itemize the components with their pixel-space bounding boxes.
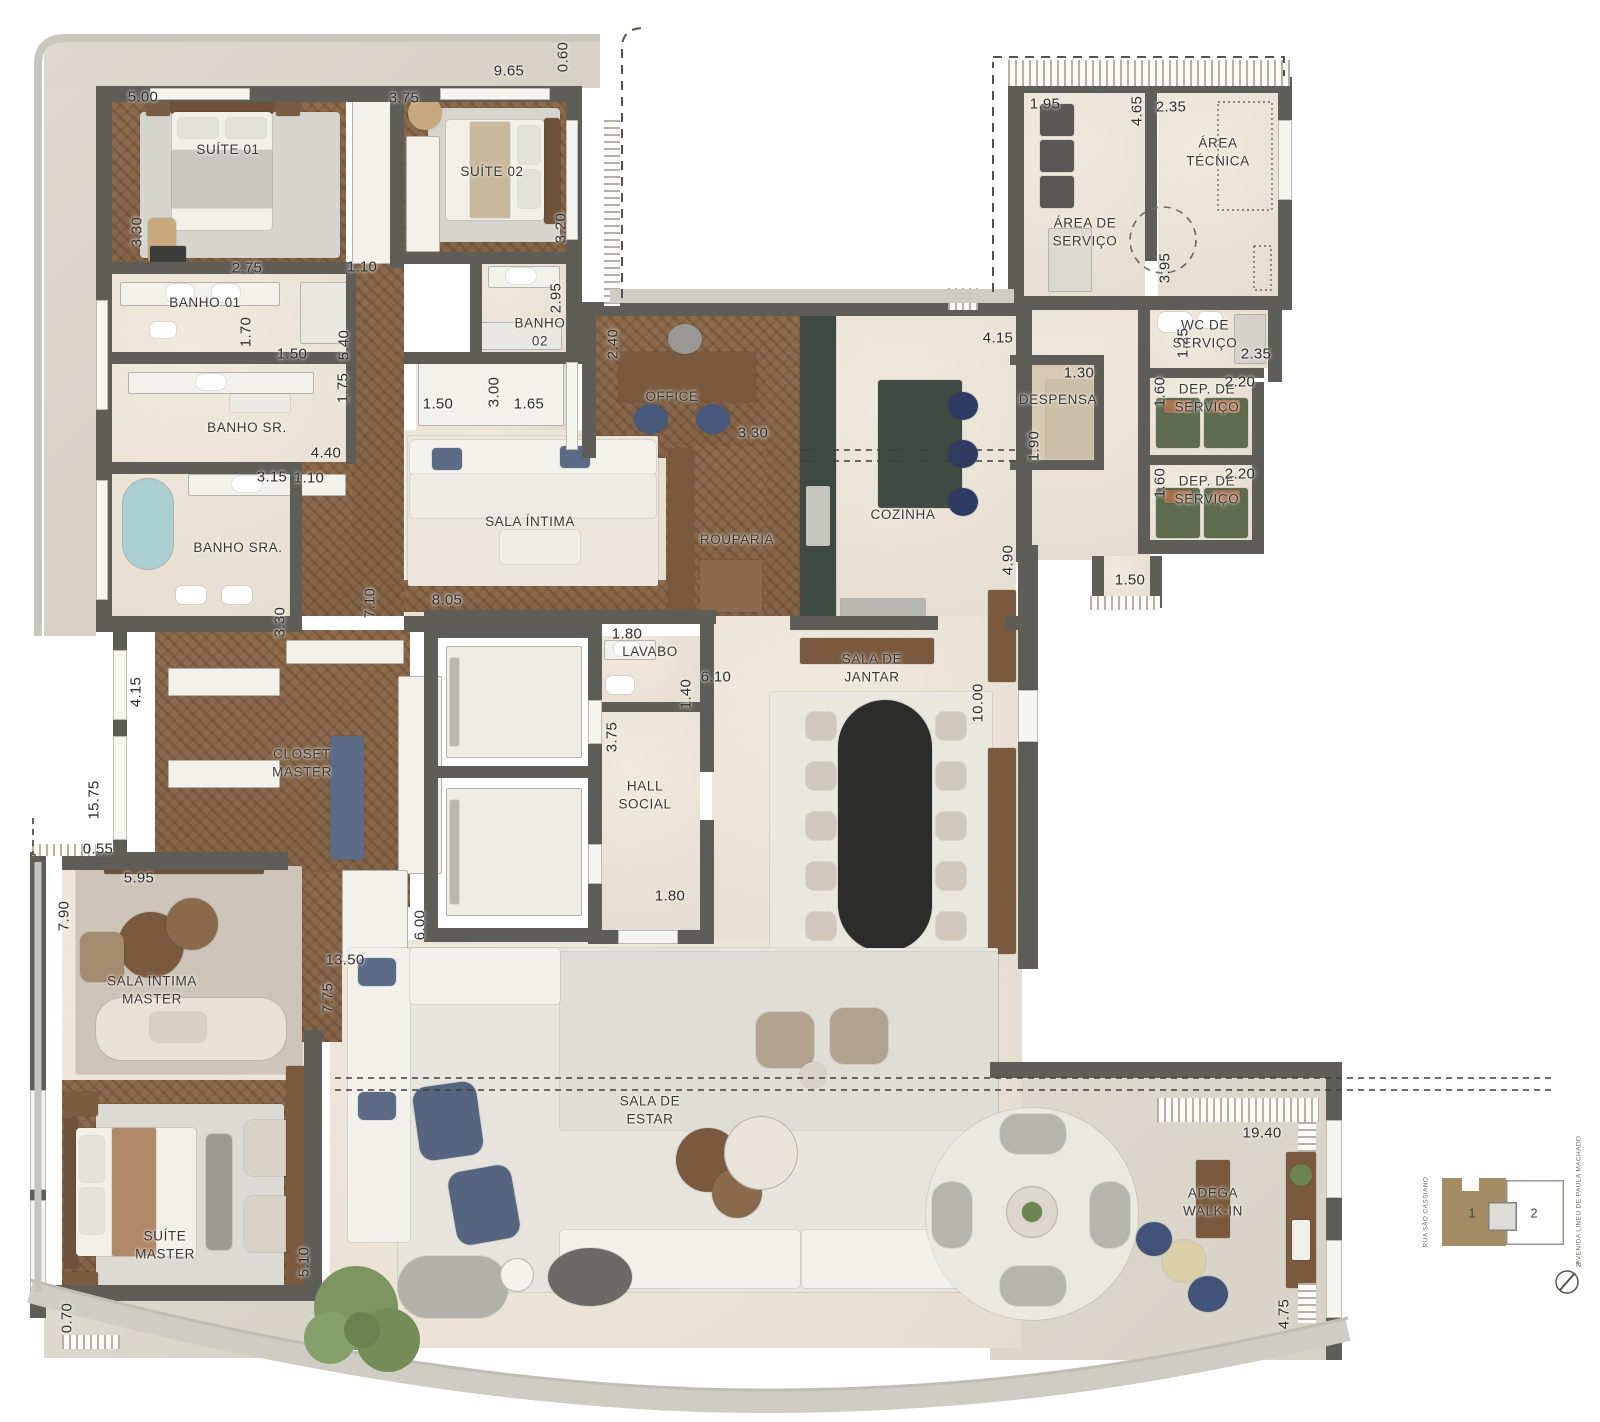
room-label-cozinha: COZINHA xyxy=(871,506,936,524)
dim-label: 1.50 xyxy=(277,346,307,363)
dim-label: 3.15 xyxy=(257,469,287,486)
dim-label: 1.10 xyxy=(347,259,377,276)
room-label-banho-sra: BANHO SRA. xyxy=(193,539,282,557)
dim-label: 1.50 xyxy=(423,396,453,413)
dim-label: 7.10 xyxy=(362,588,379,618)
room-label-area-tecnica: ÁREA TÉCNICA xyxy=(1186,134,1249,169)
north-label: N xyxy=(1576,1262,1581,1269)
dim-label: 1.70 xyxy=(238,317,255,347)
dim-label: 10.00 xyxy=(970,683,987,722)
dim-label: 6.10 xyxy=(701,669,731,686)
dim-label: 1.30 xyxy=(1064,365,1094,382)
dim-label: 1.80 xyxy=(655,888,685,905)
dim-label: 0.70 xyxy=(59,1303,76,1333)
dim-label: 13.50 xyxy=(325,952,364,969)
dim-label: 2.20 xyxy=(1225,466,1255,483)
room-label-rouparia: ROUPARIA xyxy=(700,531,774,549)
dim-label: 6.00 xyxy=(412,910,429,940)
room-label-closet-master: CLOSET MASTER xyxy=(272,745,332,780)
dim-label: 2.95 xyxy=(548,283,565,313)
dim-label: 4.15 xyxy=(983,330,1013,347)
dim-label: 1.95 xyxy=(1030,96,1060,113)
dim-label: 4.40 xyxy=(311,445,341,462)
dim-label: 5.95 xyxy=(124,870,154,887)
dim-label: 1.65 xyxy=(514,396,544,413)
dim-label: 1.10 xyxy=(294,470,324,487)
room-label-banho-sr: BANHO SR. xyxy=(207,419,287,437)
dim-label: 9.65 xyxy=(494,63,524,80)
dim-label: 3.30 xyxy=(272,607,289,637)
dim-label: 4.65 xyxy=(1129,96,1146,126)
dim-label: 3.75 xyxy=(389,90,419,107)
dim-label: 3.30 xyxy=(129,217,146,247)
dim-label: 5.40 xyxy=(336,330,353,360)
site-key-unit2-label: 2 xyxy=(1530,1206,1537,1221)
room-label-sala-de-estar: SALA DE ESTAR xyxy=(620,1092,680,1127)
dim-label: 5.00 xyxy=(128,89,158,106)
dim-label: 1.40 xyxy=(678,679,695,709)
site-key-unit1-notch xyxy=(1462,1178,1479,1191)
room-label-hall-social: HALL SOCIAL xyxy=(618,777,671,812)
room-label-despensa: DESPENSA xyxy=(1019,391,1097,409)
dim-label: 4.90 xyxy=(1000,545,1017,575)
room-label-banho-01: BANHO 01 xyxy=(169,294,241,312)
dim-label: 3.75 xyxy=(604,722,621,752)
dim-label: 1.25 xyxy=(1175,328,1192,358)
dim-label: 7.90 xyxy=(56,901,73,931)
dim-label: 3.00 xyxy=(486,377,503,407)
dim-label: 0.55 xyxy=(83,841,113,858)
room-label-sala-intima-master: SALA ÍNTIMA MASTER xyxy=(107,972,197,1007)
site-key-unit1-label: 1 xyxy=(1468,1206,1475,1221)
dim-label: 19.40 xyxy=(1242,1125,1281,1142)
room-label-suite-master: SUÍTE MASTER xyxy=(135,1227,195,1262)
dim-label: 0.60 xyxy=(555,42,572,72)
street-label-left: RUA SÃO CASSIANO xyxy=(1423,1177,1430,1248)
dim-label: 1.60 xyxy=(1152,377,1169,407)
room-label-area-de-servico: ÁREA DE SERVIÇO xyxy=(1053,214,1118,249)
room-label-suite-02: SUÍTE 02 xyxy=(460,163,523,181)
dim-label: 3.30 xyxy=(738,425,768,442)
room-label-sala-de-jantar: SALA DE JANTAR xyxy=(842,650,902,685)
dim-label: 1.60 xyxy=(1152,468,1169,498)
dim-label: 15.75 xyxy=(86,780,103,819)
room-label-sala-intima: SALA ÍNTIMA xyxy=(485,513,575,531)
room-label-lavabo: LAVABO xyxy=(622,643,678,661)
dim-label: 2.35 xyxy=(1241,346,1271,363)
street-label-right: AVENIDA LINEU DE PAULA MACHADO xyxy=(1576,1136,1583,1265)
site-key-core-shape xyxy=(1488,1202,1517,1231)
dim-label: 5.10 xyxy=(296,1247,313,1277)
room-label-office: OFFICE xyxy=(645,388,698,406)
room-label-banho-02: BANHO 02 xyxy=(514,314,565,349)
floor-plan: SUÍTE 01SUÍTE 02BANHO 01BANHO 02BANHO SR… xyxy=(0,0,1600,1422)
dim-label: 7.75 xyxy=(320,983,337,1013)
dim-label: 2.40 xyxy=(605,329,622,359)
dim-label: 1.90 xyxy=(1026,431,1043,461)
dim-label: 8.05 xyxy=(432,592,462,609)
dim-label: 2.20 xyxy=(1225,374,1255,391)
labels-layer: SUÍTE 01SUÍTE 02BANHO 01BANHO 02BANHO SR… xyxy=(0,0,1600,1422)
dim-label: 4.75 xyxy=(1276,1299,1293,1329)
dim-label: 2.75 xyxy=(232,260,262,277)
dim-label: 1.75 xyxy=(335,373,352,403)
dim-label: 4.15 xyxy=(128,677,145,707)
room-label-adega-walk-in: ADEGA WALK-IN xyxy=(1183,1184,1243,1219)
dim-label: 3.20 xyxy=(553,213,570,243)
dim-label: 1.50 xyxy=(1115,572,1145,589)
dim-label: 3.95 xyxy=(1157,253,1174,283)
room-label-suite-01: SUÍTE 01 xyxy=(196,141,259,159)
dim-label: 1.80 xyxy=(612,626,642,643)
dim-label: 2.35 xyxy=(1156,99,1186,116)
